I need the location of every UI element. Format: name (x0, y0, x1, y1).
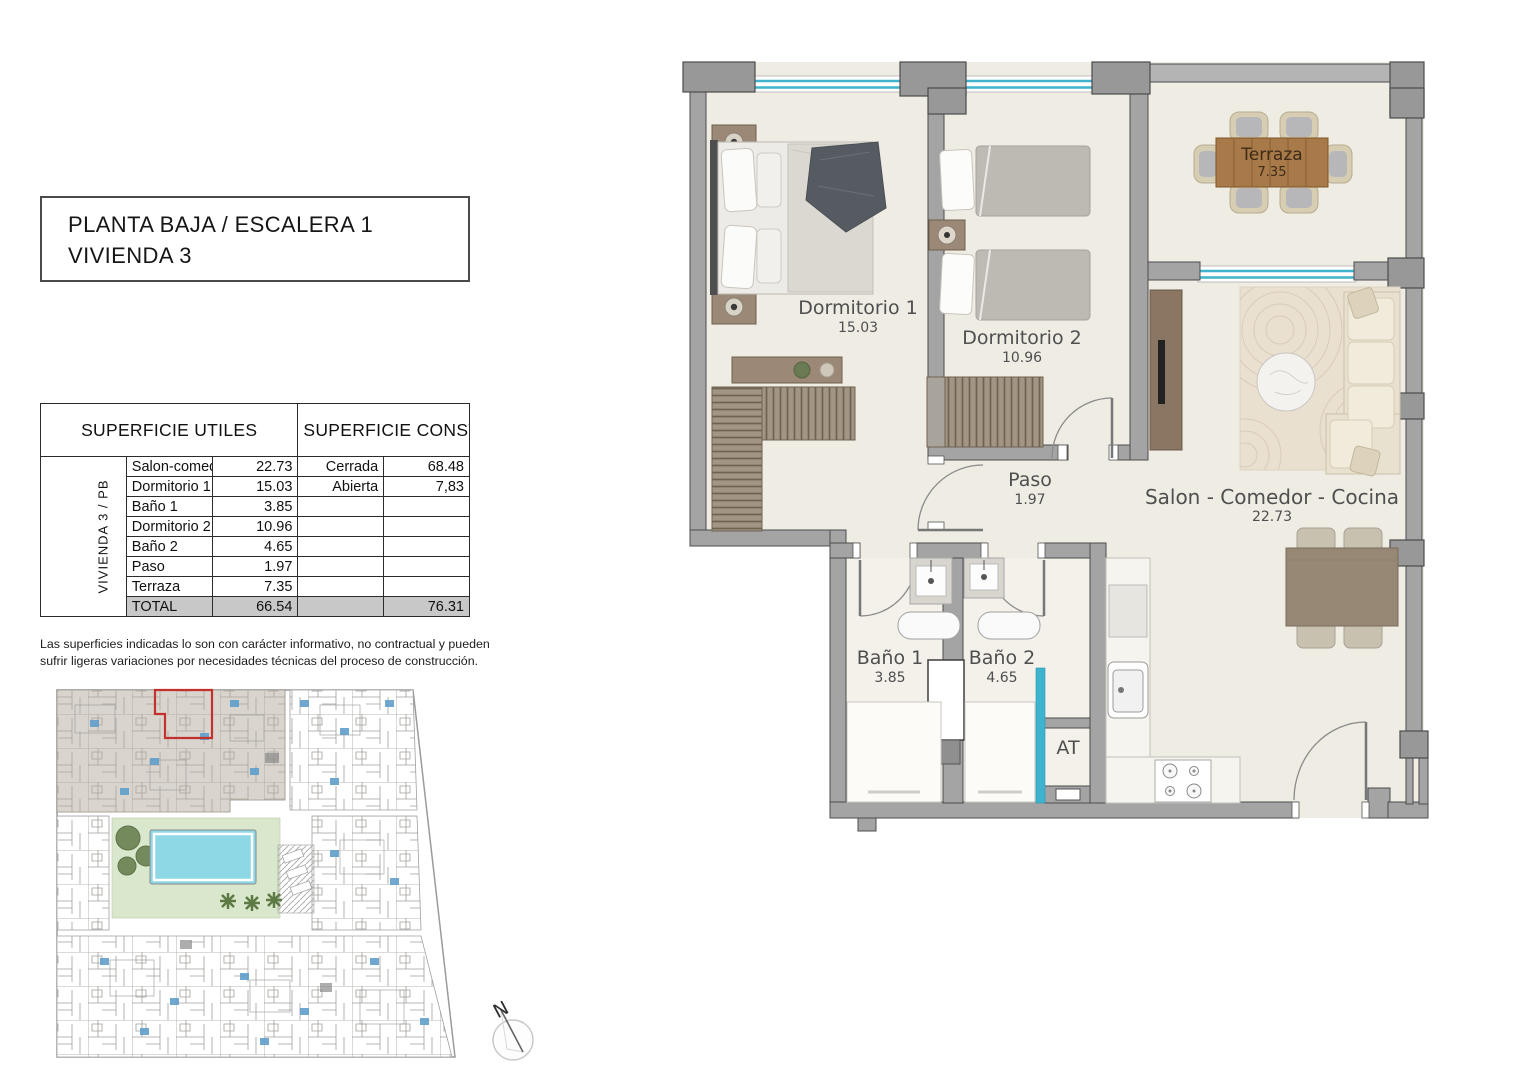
header-superficie-utiles: SUPERFICIE UTILES (41, 404, 298, 457)
room-label-dormitorio-1: Dormitorio 1 15.03 (798, 298, 917, 336)
shower-tray (847, 702, 941, 802)
shower-tray (965, 702, 1035, 802)
toilet (898, 612, 960, 639)
single-bed (976, 250, 1090, 320)
room-label-at: AT (1056, 738, 1079, 760)
highlighted-block (57, 690, 285, 812)
header-superficie-construidas: SUPERFICIE CONSTRUIDAS (298, 404, 470, 457)
water-partition (1036, 668, 1045, 803)
coffee-table (1257, 353, 1315, 411)
room-label-dormitorio-2: Dormitorio 2 10.96 (962, 328, 1081, 366)
vent (1056, 789, 1080, 800)
room-label-salon-comedor-cocina: Salon - Comedor - Cocina 22.73 (1145, 486, 1399, 525)
pool (150, 830, 256, 884)
stove (1155, 760, 1211, 802)
wardrobe (712, 387, 762, 531)
bed-headboard (710, 140, 718, 295)
fridge (1109, 585, 1147, 637)
floorplan-page: PLANTA BAJA / ESCALERA 1 VIVIENDA 3 SUPE… (0, 0, 1528, 1080)
room-label-bano-2: Baño 2 4.65 (969, 648, 1035, 686)
table-row: VIVIENDA 3 / PB Salon-comedor-cocina 22.… (41, 457, 470, 477)
window-dorm2 (966, 76, 1092, 92)
room-label-paso: Paso 1.97 (1008, 470, 1052, 508)
window-salon-terraza (1198, 266, 1356, 282)
window-dorm1 (755, 76, 900, 92)
vivienda-vertical-label: VIVIENDA 3 / PB (41, 457, 127, 617)
tree (118, 857, 136, 875)
tv (1158, 340, 1165, 404)
title-line-1: PLANTA BAJA / ESCALERA 1 (68, 209, 468, 240)
toilet (978, 612, 1040, 639)
room-label-terraza: Terraza 7.35 (1241, 146, 1302, 180)
site-plan (57, 690, 533, 1060)
tree (116, 826, 140, 850)
areas-table: SUPERFICIE UTILES SUPERFICIE CONSTRUIDAS… (40, 403, 470, 617)
disclaimer-text: Las superficies indicadas lo son con car… (40, 636, 506, 669)
main-floorplan (683, 62, 1428, 831)
single-bed (976, 146, 1090, 216)
title-box: PLANTA BAJA / ESCALERA 1 VIVIENDA 3 (40, 196, 470, 282)
room-label-bano-1: Baño 1 3.85 (857, 648, 923, 686)
title-line-2: VIVIENDA 3 (68, 240, 468, 271)
tv-unit (1150, 290, 1182, 450)
